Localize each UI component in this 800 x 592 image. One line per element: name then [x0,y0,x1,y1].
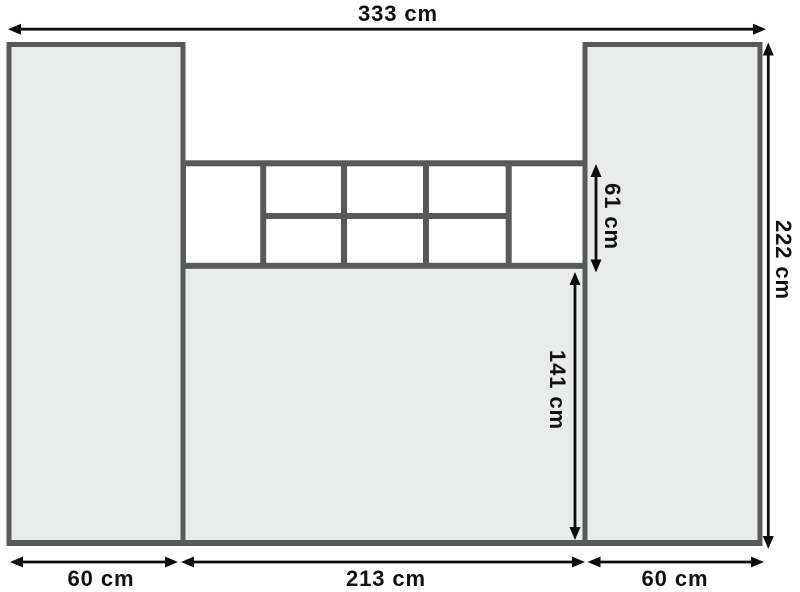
svg-text:333 cm: 333 cm [358,1,438,26]
svg-text:61 cm: 61 cm [600,183,625,250]
svg-text:60 cm: 60 cm [642,566,709,591]
svg-text:213 cm: 213 cm [346,566,426,591]
svg-text:141 cm: 141 cm [545,350,570,430]
svg-text:222 cm: 222 cm [771,220,796,300]
svg-text:60 cm: 60 cm [68,566,135,591]
